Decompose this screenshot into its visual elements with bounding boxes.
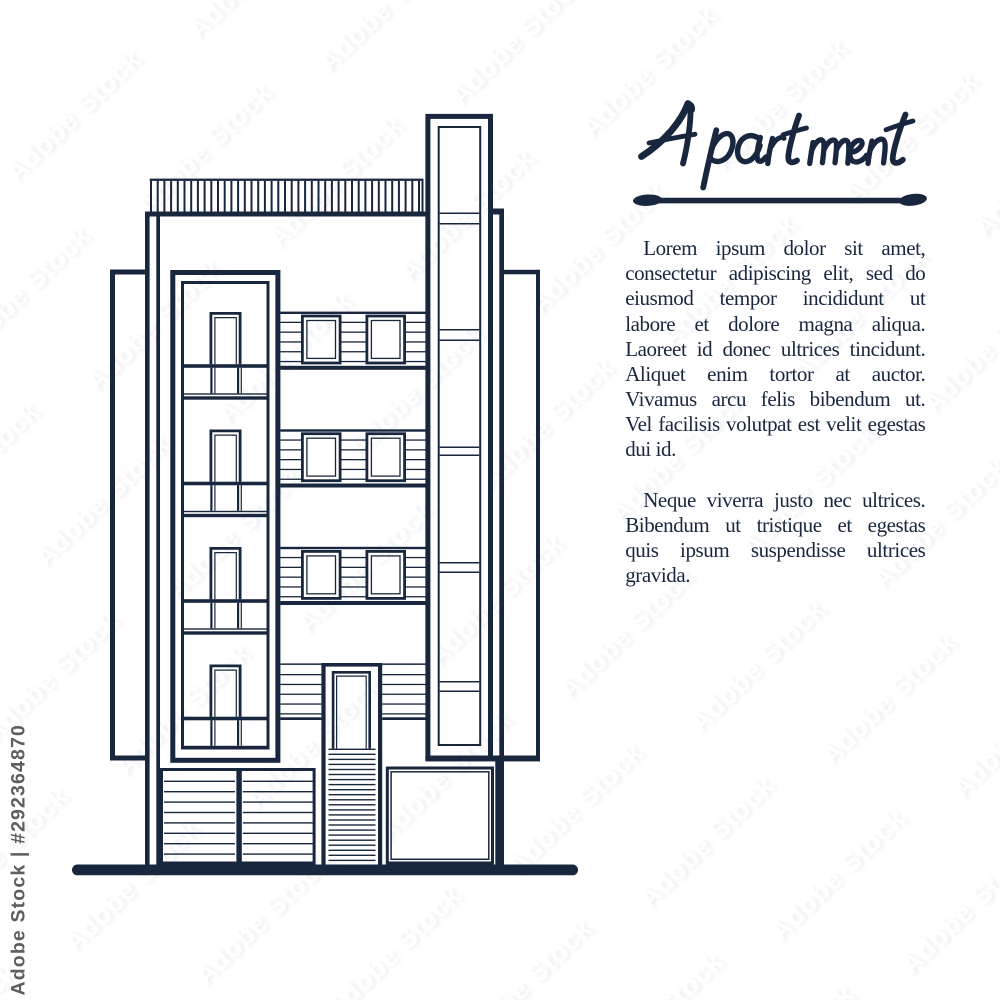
svg-text:Adobe Stock: Adobe Stock — [895, 836, 1000, 980]
svg-text:Adobe Stock: Adobe Stock — [0, 44, 147, 188]
svg-text:Adobe Stock: Adobe Stock — [313, 0, 460, 78]
svg-text:Adobe Stock: Adobe Stock — [575, 0, 722, 144]
svg-text:Adobe Stock: Adobe Stock — [320, 880, 467, 1000]
svg-text:Adobe Stock: Adobe Stock — [444, 0, 591, 111]
svg-text:Adobe Stock: Adobe Stock — [764, 803, 911, 947]
svg-text:Adobe Stock: Adobe Stock — [684, 594, 831, 738]
svg-text:Adobe Stock: Adobe Stock — [211, 286, 358, 430]
svg-text:Adobe Stock: Adobe Stock — [946, 660, 1000, 804]
svg-text:Adobe Stock: Adobe Stock — [422, 528, 569, 672]
svg-text:Adobe Stock: Adobe Stock — [968, 99, 1000, 243]
svg-text:Adobe Stock: Adobe Stock — [473, 352, 620, 496]
svg-text:Adobe Stock: Adobe Stock — [917, 275, 1000, 419]
svg-text:Adobe Stock: Adobe Stock — [29, 429, 176, 573]
svg-text:Adobe Stock: Adobe Stock — [633, 770, 780, 914]
svg-text:Adobe Stock: Adobe Stock — [451, 913, 598, 1000]
svg-text:Adobe Stock: Adobe Stock — [0, 396, 45, 540]
svg-text:Adobe Stock: Adobe Stock — [0, 220, 96, 364]
svg-text:Adobe Stock: Adobe Stock — [182, 0, 329, 45]
svg-text:Adobe Stock: Adobe Stock — [582, 946, 729, 1000]
svg-text:Adobe Stock: Adobe Stock — [58, 814, 205, 958]
svg-text:Adobe Stock: Adobe Stock — [713, 979, 860, 1000]
svg-text:Adobe Stock: Adobe Stock — [815, 627, 962, 771]
